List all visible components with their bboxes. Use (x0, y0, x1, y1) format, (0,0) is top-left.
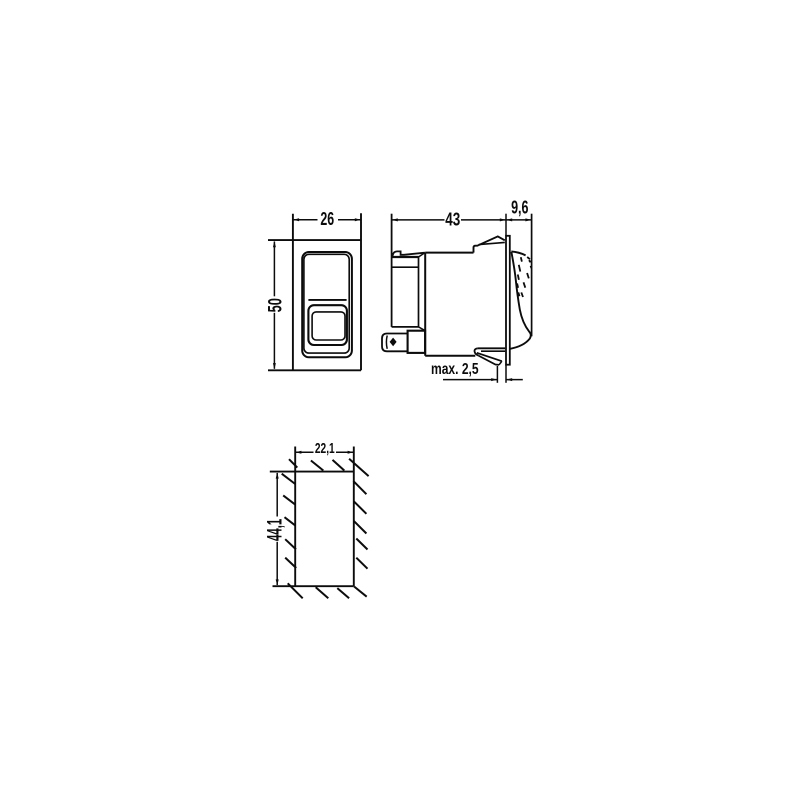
svg-text:9,6: 9,6 (511, 196, 528, 217)
svg-text:50: 50 (264, 298, 286, 312)
svg-text:26: 26 (320, 208, 334, 229)
svg-text:44,1: 44,1 (262, 519, 286, 541)
svg-text:43: 43 (445, 209, 460, 230)
svg-text:max. 2,5: max. 2,5 (431, 361, 479, 378)
svg-text:22,1: 22,1 (315, 440, 335, 457)
